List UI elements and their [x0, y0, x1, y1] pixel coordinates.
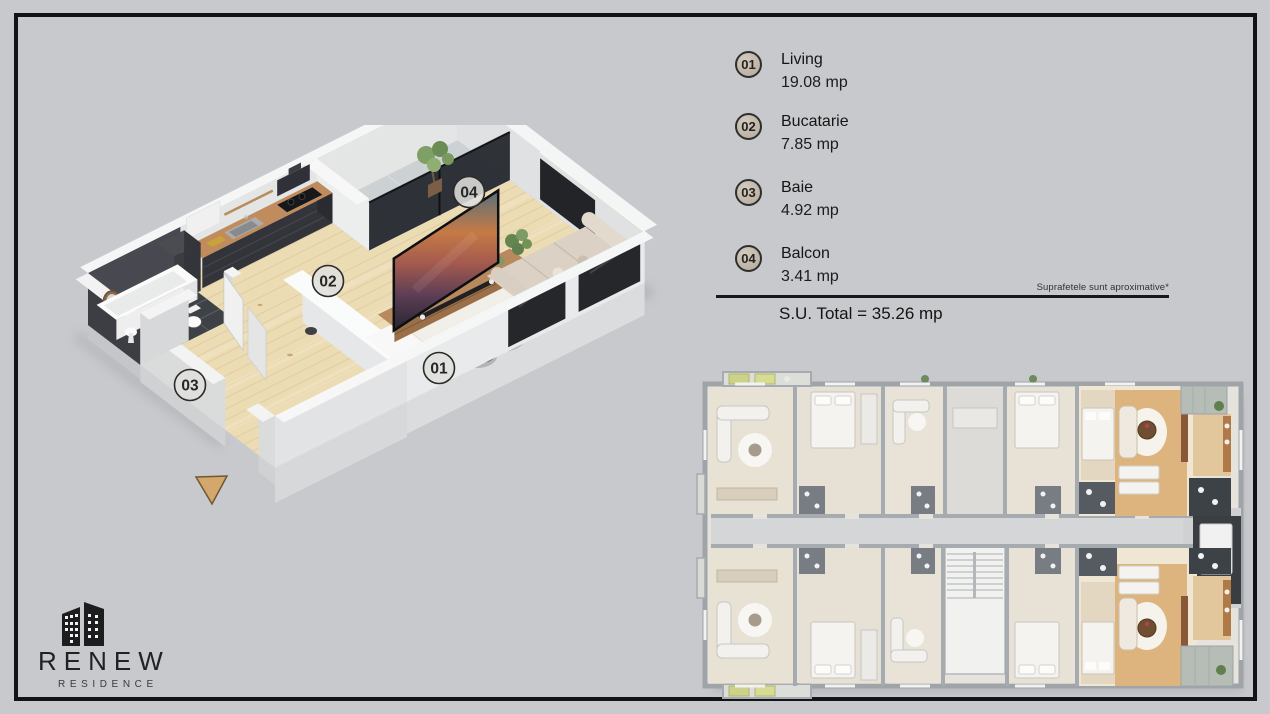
legend-item-bucatarie: 02 Bucatarie 7.85 mp	[735, 111, 849, 156]
legend-item-baie: 03 Baie 4.92 mp	[735, 177, 839, 222]
logo-title: RENEW	[38, 646, 170, 677]
apartment-presentation-poster: 01 02 03 04 01 Living 19.08 mp 02 Bucata…	[0, 0, 1270, 714]
room-area: 4.92 mp	[781, 199, 839, 222]
staircase	[945, 546, 1005, 674]
room-name: Balcon	[781, 243, 839, 265]
svg-text:03: 03	[181, 378, 199, 395]
buildings-icon	[60, 600, 108, 646]
room-number-badge: 04	[735, 245, 762, 272]
badge-01: 01	[424, 353, 455, 384]
floor-plan-overview	[695, 370, 1251, 700]
corridor	[711, 516, 1193, 546]
stool	[305, 327, 317, 335]
room-area: 19.08 mp	[781, 71, 848, 94]
room-number-badge: 02	[735, 113, 762, 140]
room-area: 7.85 mp	[781, 133, 849, 156]
badge-03: 03	[175, 370, 206, 401]
building	[697, 372, 1241, 698]
room-number-badge: 03	[735, 179, 762, 206]
room-name: Living	[781, 49, 848, 71]
total-area: S.U. Total = 35.26 mp	[779, 304, 943, 324]
svg-text:02: 02	[319, 274, 336, 291]
svg-text:04: 04	[460, 185, 478, 202]
room-name: Bucatarie	[781, 111, 849, 133]
highlighted-unit-top	[1079, 386, 1231, 516]
room-area: 3.41 mp	[781, 265, 839, 288]
isometric-apartment-render: 01 02 03 04	[30, 125, 690, 645]
divider-rule	[716, 295, 1169, 298]
highlighted-unit-bottom	[1079, 548, 1233, 686]
legend-item-living: 01 Living 19.08 mp	[735, 49, 848, 94]
legend-item-balcon: 04 Balcon 3.41 mp	[735, 243, 839, 288]
room-number-badge: 01	[735, 51, 762, 78]
badge-02: 02	[313, 266, 344, 297]
approximation-note: Suprafetele sunt aproximative*	[1037, 282, 1169, 293]
room-name: Baie	[781, 177, 839, 199]
badge-04: 04	[454, 177, 485, 208]
entrance-arrow-icon	[196, 476, 227, 504]
logo-subtitle: RESIDENCE	[58, 679, 158, 690]
svg-text:01: 01	[430, 361, 448, 378]
